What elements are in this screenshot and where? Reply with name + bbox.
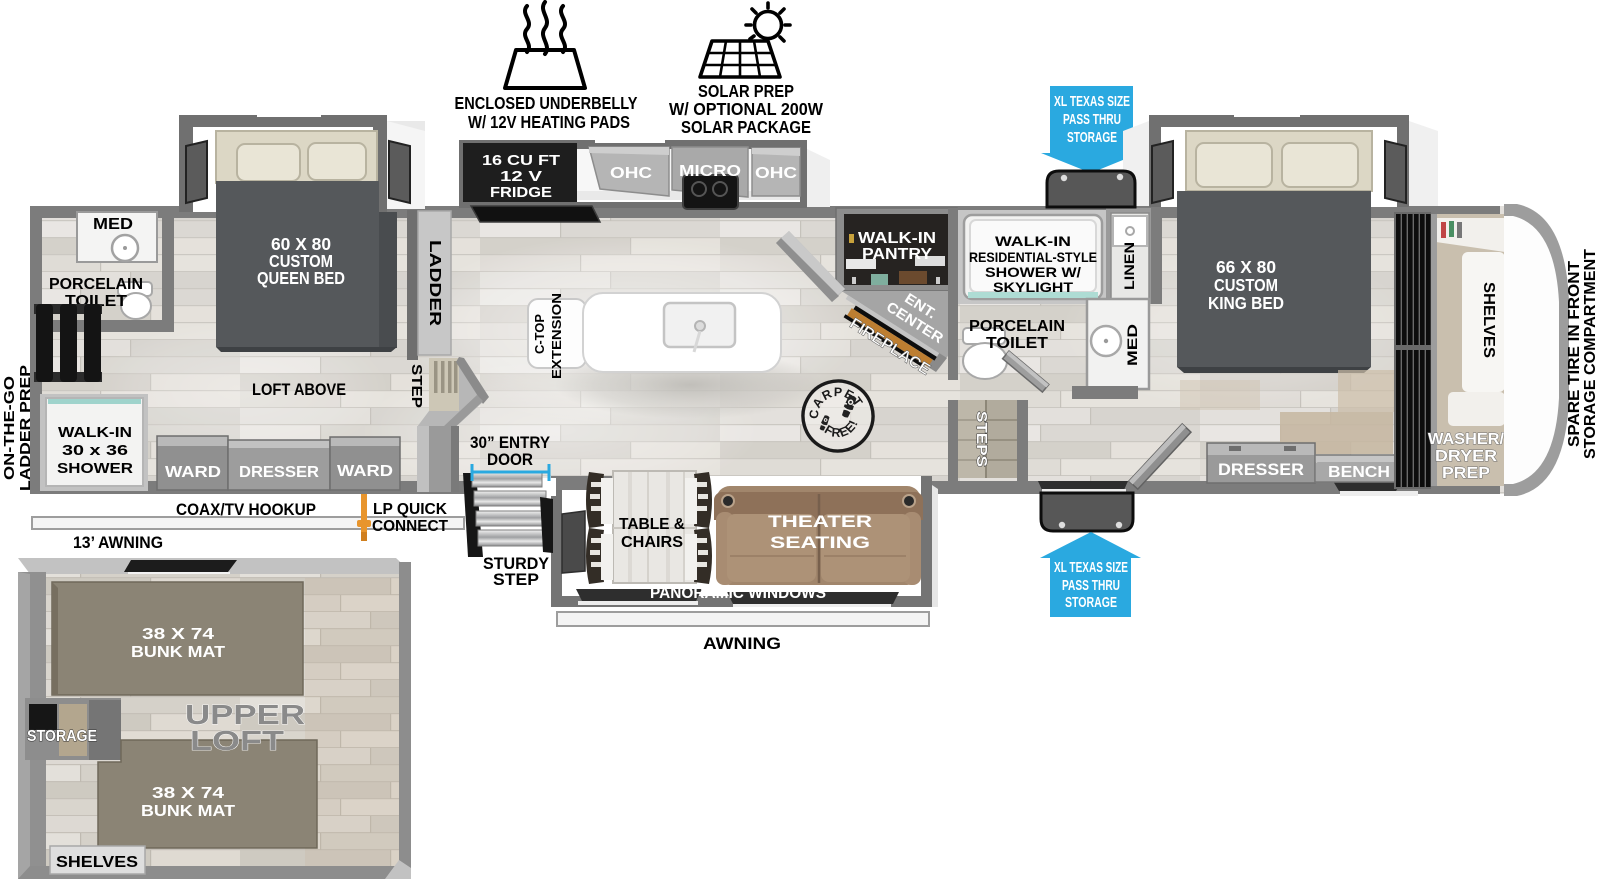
svg-text:BUNK MAT: BUNK MAT [131,644,225,661]
svg-text:66 X 80: 66 X 80 [1216,257,1276,277]
svg-text:RESIDENTIAL-STYLE: RESIDENTIAL-STYLE [969,249,1097,265]
svg-text:WALK-IN: WALK-IN [995,233,1071,249]
svg-text:C-TOP: C-TOP [532,314,547,354]
svg-text:30 x 36: 30 x 36 [62,442,128,459]
svg-text:MED: MED [1124,324,1140,366]
svg-text:PASS THRU: PASS THRU [1062,577,1120,594]
svg-text:W/ OPTIONAL 200W: W/ OPTIONAL 200W [669,99,823,119]
svg-text:12 V: 12 V [500,168,542,185]
svg-text:CUSTOM: CUSTOM [1214,275,1278,295]
svg-text:SHOWER: SHOWER [57,460,133,477]
svg-text:PREP: PREP [1442,465,1490,482]
svg-text:STORAGE: STORAGE [1065,594,1117,611]
svg-text:38 X 74: 38 X 74 [142,626,214,643]
svg-text:PANTRY: PANTRY [862,246,933,263]
svg-text:EXTENSION: EXTENSION [549,293,564,379]
svg-text:SOLAR PREP: SOLAR PREP [698,81,794,101]
svg-text:LADDER: LADDER [426,240,443,327]
svg-text:DRYER: DRYER [1435,448,1497,465]
svg-text:CONNECT: CONNECT [372,518,448,535]
svg-text:XL TEXAS SIZE: XL TEXAS SIZE [1054,559,1128,576]
svg-text:STEPS: STEPS [973,411,990,467]
svg-text:BENCH: BENCH [1328,464,1390,481]
svg-text:SOLAR PACKAGE: SOLAR PACKAGE [681,117,811,137]
svg-text:38 X 74: 38 X 74 [152,785,224,802]
svg-text:MICRO: MICRO [679,163,741,180]
svg-text:PORCELAIN: PORCELAIN [969,318,1065,335]
svg-text:QUEEN BED: QUEEN BED [257,268,345,288]
svg-text:CHAIRS: CHAIRS [621,534,683,551]
svg-text:COAX/TV HOOKUP: COAX/TV HOOKUP [176,501,316,519]
svg-text:STORAGE COMPARTMENT: STORAGE COMPARTMENT [1582,249,1599,459]
svg-text:LADDER PREP: LADDER PREP [17,365,34,491]
svg-text:30” ENTRY: 30” ENTRY [470,434,550,452]
svg-text:BUNK MAT: BUNK MAT [141,803,235,820]
svg-text:LOFT ABOVE: LOFT ABOVE [252,380,346,399]
svg-text:PORCELAIN: PORCELAIN [49,276,143,293]
svg-text:WALK-IN: WALK-IN [858,230,936,247]
svg-text:SHOWER W/: SHOWER W/ [985,264,1081,280]
svg-text:OHC: OHC [755,165,797,182]
svg-text:WALK-IN: WALK-IN [58,424,132,441]
svg-text:WASHER/: WASHER/ [1428,431,1505,448]
svg-text:STORAGE: STORAGE [27,728,97,745]
svg-text:W/ 12V HEATING PADS: W/ 12V HEATING PADS [468,112,630,132]
svg-text:ON-THE-GO: ON-THE-GO [1,376,18,480]
svg-text:SEATING: SEATING [770,534,870,552]
svg-text:SHELVES: SHELVES [56,854,138,871]
svg-text:THEATER: THEATER [768,513,872,531]
svg-text:STEP: STEP [408,364,424,408]
svg-text:PANORAMIC WINDOWS: PANORAMIC WINDOWS [650,585,826,602]
svg-text:TABLE &: TABLE & [619,516,685,533]
svg-text:OHC: OHC [610,165,652,182]
svg-text:AWNING: AWNING [703,634,781,653]
svg-text:LINEN: LINEN [1122,242,1137,290]
svg-text:SKYLIGHT: SKYLIGHT [993,279,1074,295]
svg-text:ENCLOSED UNDERBELLY: ENCLOSED UNDERBELLY [455,93,638,113]
svg-text:13’ AWNING: 13’ AWNING [73,534,163,552]
svg-text:PASS THRU: PASS THRU [1063,112,1121,128]
svg-text:TOILET: TOILET [986,335,1049,352]
svg-text:SPARE TIRE IN FRONT: SPARE TIRE IN FRONT [1566,261,1583,447]
svg-text:FRIDGE: FRIDGE [490,184,552,201]
svg-text:DOOR: DOOR [487,451,533,469]
svg-text:DRESSER: DRESSER [1218,460,1304,479]
svg-text:16 CU FT: 16 CU FT [482,152,560,169]
svg-text:WARD: WARD [165,464,221,481]
svg-text:WARD: WARD [337,463,393,480]
svg-text:STEP: STEP [493,571,539,589]
svg-text:LOFT: LOFT [190,725,284,756]
svg-text:LP QUICK: LP QUICK [373,501,447,518]
svg-text:MED: MED [93,216,133,233]
svg-text:DRESSER: DRESSER [239,464,319,481]
svg-text:STORAGE: STORAGE [1067,130,1117,146]
svg-text:SHELVES: SHELVES [1480,282,1497,358]
svg-text:XL TEXAS SIZE: XL TEXAS SIZE [1054,94,1130,110]
svg-text:KING BED: KING BED [1208,293,1284,313]
